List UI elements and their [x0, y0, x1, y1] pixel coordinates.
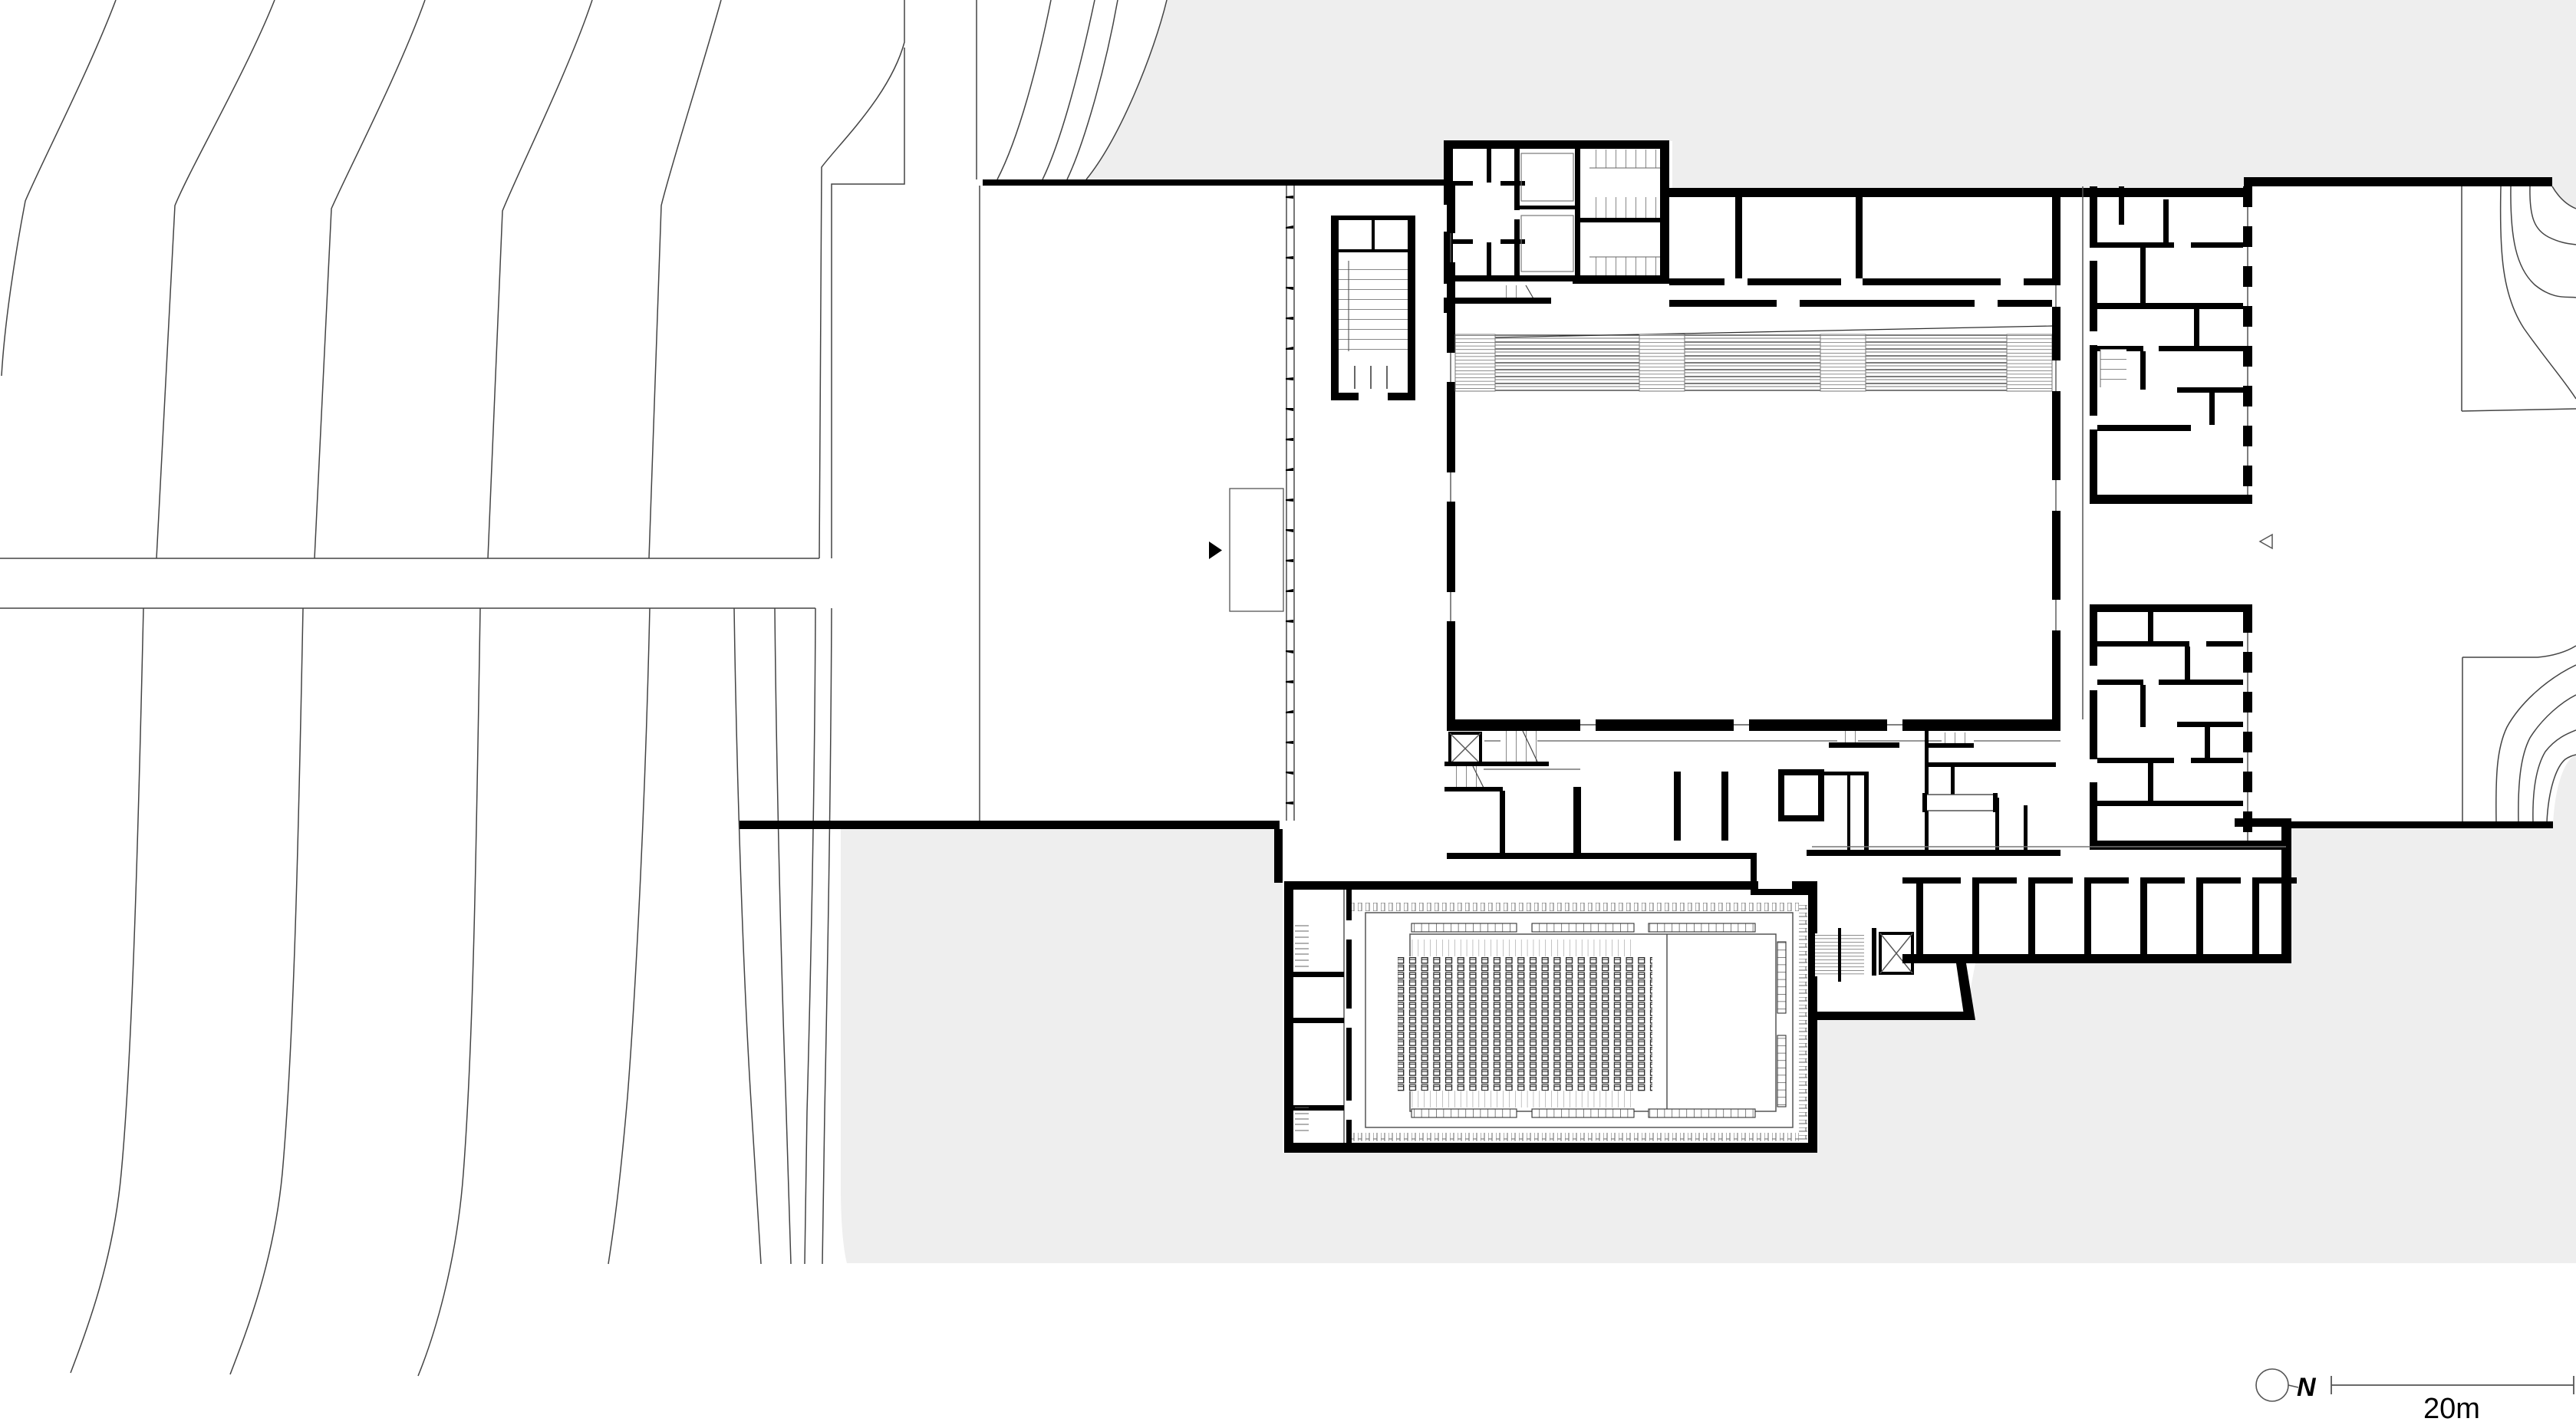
svg-text:N: N: [2297, 1373, 2317, 1402]
svg-text:20m: 20m: [2423, 1393, 2480, 1425]
